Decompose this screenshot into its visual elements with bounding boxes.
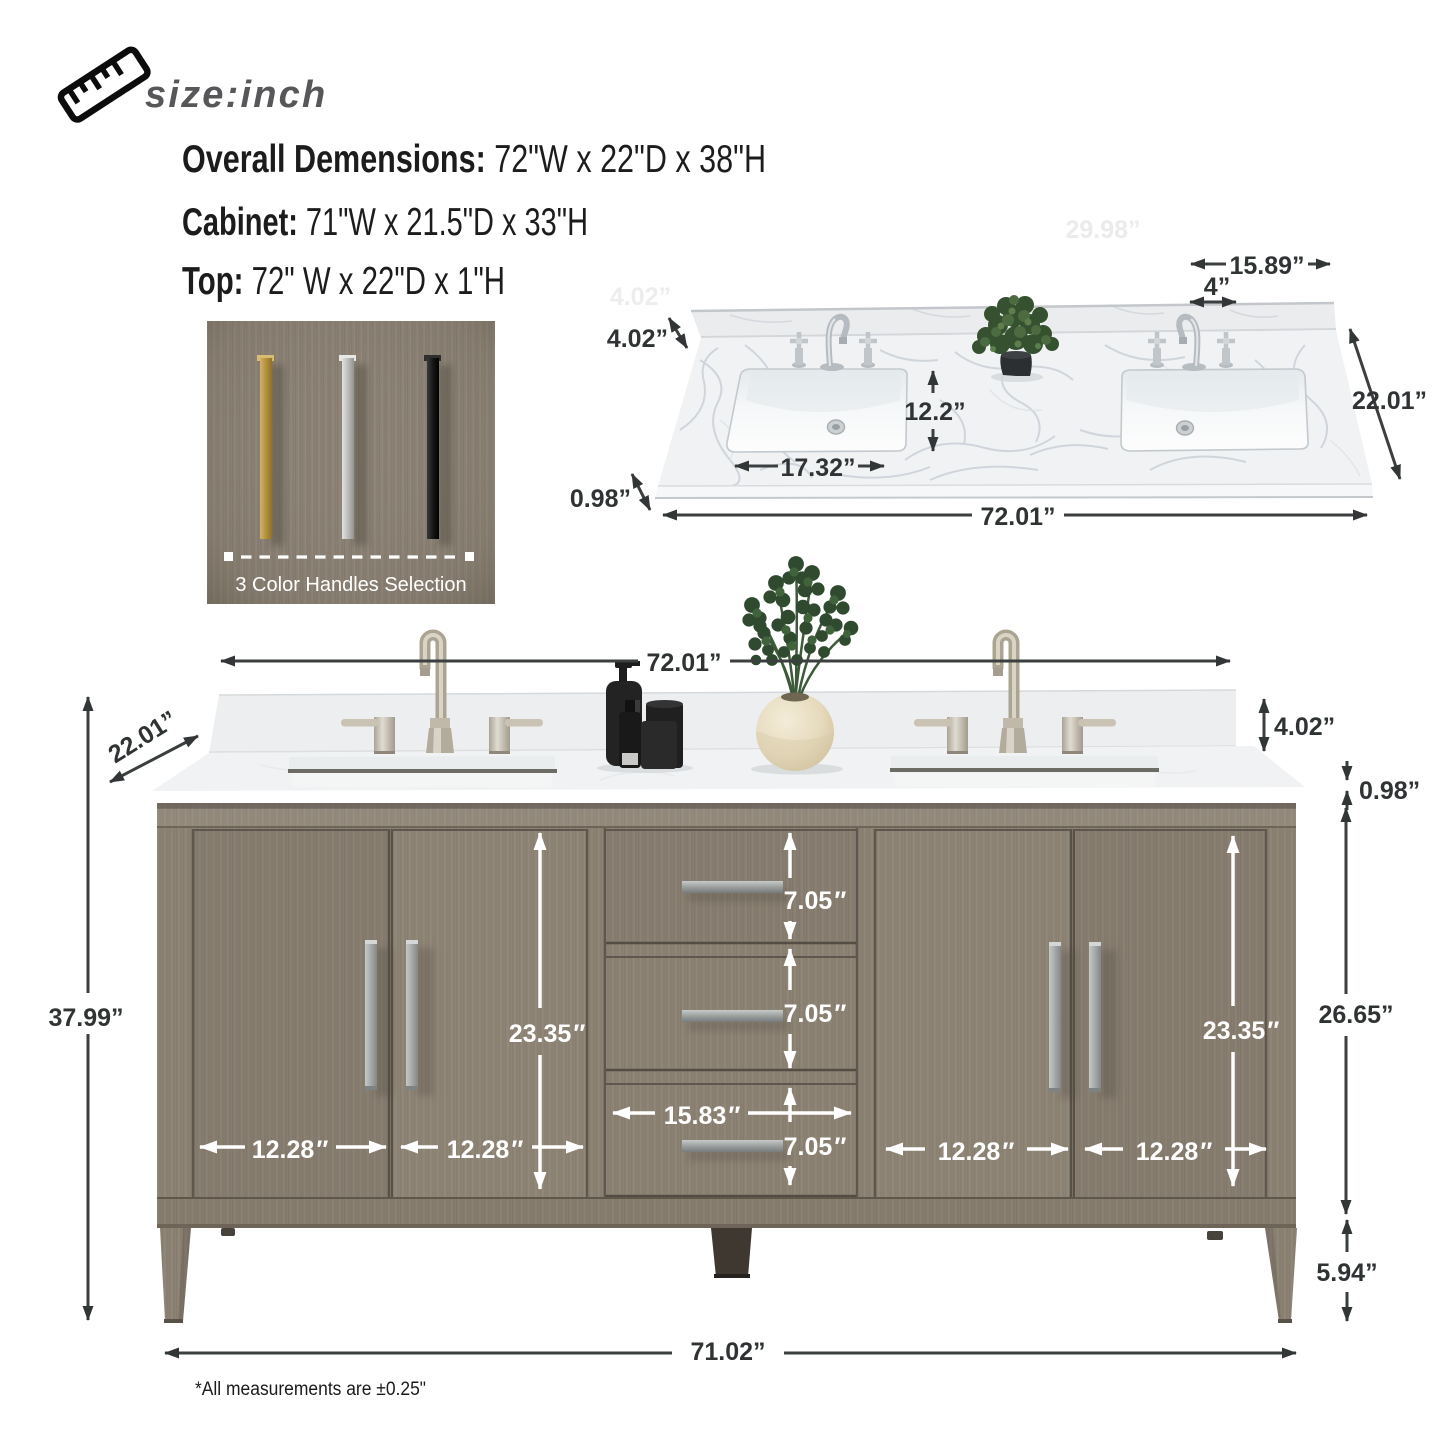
svg-text:7.05 ″: 7.05 ″ xyxy=(784,1000,847,1028)
svg-text:12.28 ″: 12.28 ″ xyxy=(252,1136,329,1164)
svg-text:Cabinet: 71"W x 21.5"D x 33"H: Cabinet: 71"W x 21.5"D x 33"H xyxy=(182,201,588,244)
svg-text:*All measurements are ±0.25": *All measurements are ±0.25" xyxy=(195,1379,426,1400)
svg-text:72.01”: 72.01” xyxy=(646,649,721,677)
svg-text:0.98”: 0.98” xyxy=(1359,777,1420,805)
svg-text:7.05 ″: 7.05 ″ xyxy=(784,887,847,915)
svg-text:23.35 ″: 23.35 ″ xyxy=(1203,1017,1280,1045)
svg-text:Overall Demensions: 72"W x 22": Overall Demensions: 72"W x 22"D x 38"H xyxy=(182,138,766,181)
svg-text:12.28 ″: 12.28 ″ xyxy=(938,1138,1015,1166)
svg-text:15.83 ″: 15.83 ″ xyxy=(664,1102,741,1130)
svg-text:22.01”: 22.01” xyxy=(1352,387,1427,415)
svg-text:Top: 72" W x 22"D x 1"H: Top: 72" W x 22"D x 1"H xyxy=(182,260,505,303)
svg-text:3 Color Handles Selection: 3 Color Handles Selection xyxy=(235,574,466,596)
svg-text:23.35 ″: 23.35 ″ xyxy=(509,1020,586,1048)
svg-text:4.02”: 4.02” xyxy=(1274,713,1335,741)
svg-text:4”: 4” xyxy=(1204,273,1230,301)
svg-text:22.01”: 22.01” xyxy=(104,705,182,769)
svg-text:37.99”: 37.99” xyxy=(48,1004,123,1032)
svg-text:4.02”: 4.02” xyxy=(610,283,671,311)
svg-text:29.98”: 29.98” xyxy=(1065,216,1140,244)
svg-text:17.32”: 17.32” xyxy=(780,454,855,482)
svg-text:26.65”: 26.65” xyxy=(1318,1001,1393,1029)
svg-text:5.94”: 5.94” xyxy=(1316,1259,1377,1287)
svg-text:12.28 ″: 12.28 ″ xyxy=(447,1136,524,1164)
svg-text:12.28 ″: 12.28 ″ xyxy=(1136,1138,1213,1166)
svg-text:15.89”: 15.89” xyxy=(1229,252,1304,280)
svg-text:size:inch: size:inch xyxy=(145,74,327,116)
svg-text:71.02”: 71.02” xyxy=(690,1338,765,1366)
svg-text:12.2”: 12.2” xyxy=(904,398,965,426)
svg-text:7.05 ″: 7.05 ″ xyxy=(784,1133,847,1161)
svg-text:4.02”: 4.02” xyxy=(607,325,668,353)
svg-text:0.98”: 0.98” xyxy=(570,485,631,513)
svg-text:72.01”: 72.01” xyxy=(980,503,1055,531)
